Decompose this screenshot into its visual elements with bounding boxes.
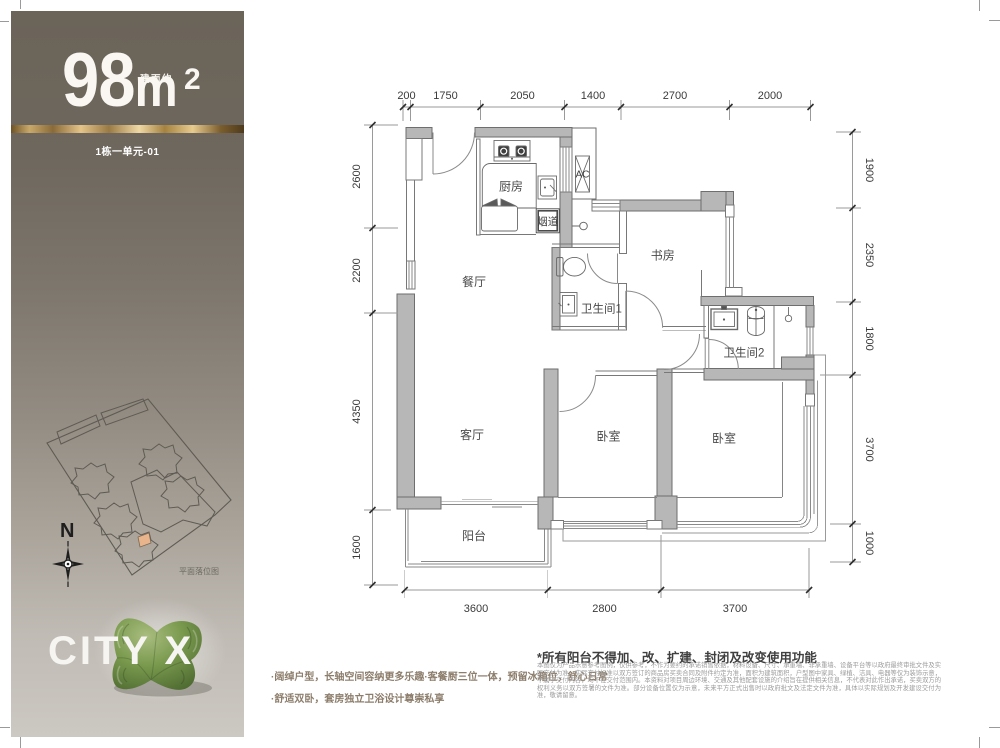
- svg-text:2350: 2350: [863, 243, 875, 267]
- svg-text:3700: 3700: [723, 603, 747, 615]
- svg-text:卧室: 卧室: [712, 431, 736, 446]
- svg-text:1600: 1600: [351, 535, 363, 559]
- svg-text:书房: 书房: [651, 248, 675, 263]
- svg-text:阳台: 阳台: [462, 528, 486, 543]
- svg-text:卫生间1: 卫生间1: [581, 302, 622, 316]
- svg-text:2700: 2700: [663, 90, 687, 102]
- svg-text:客厅: 客厅: [460, 427, 484, 442]
- svg-text:烟道: 烟道: [537, 215, 558, 228]
- svg-text:1800: 1800: [863, 326, 875, 350]
- svg-text:2800: 2800: [592, 603, 616, 615]
- svg-text:2600: 2600: [351, 164, 363, 188]
- svg-text:餐厅: 餐厅: [462, 274, 486, 289]
- svg-text:1750: 1750: [433, 90, 457, 102]
- svg-text:卧室: 卧室: [596, 429, 620, 444]
- svg-text:200: 200: [397, 90, 415, 102]
- svg-text:1900: 1900: [863, 158, 875, 182]
- svg-text:1400: 1400: [581, 90, 605, 102]
- svg-text:卫生间2: 卫生间2: [724, 346, 765, 360]
- svg-text:1000: 1000: [863, 531, 875, 555]
- svg-text:2000: 2000: [758, 90, 782, 102]
- svg-text:2200: 2200: [351, 258, 363, 282]
- svg-text:2050: 2050: [510, 90, 534, 102]
- svg-text:4350: 4350: [351, 399, 363, 423]
- svg-text:厨房: 厨房: [499, 179, 523, 194]
- svg-text:3600: 3600: [464, 603, 488, 615]
- svg-text:AC: AC: [576, 170, 590, 181]
- svg-text:3700: 3700: [863, 437, 875, 461]
